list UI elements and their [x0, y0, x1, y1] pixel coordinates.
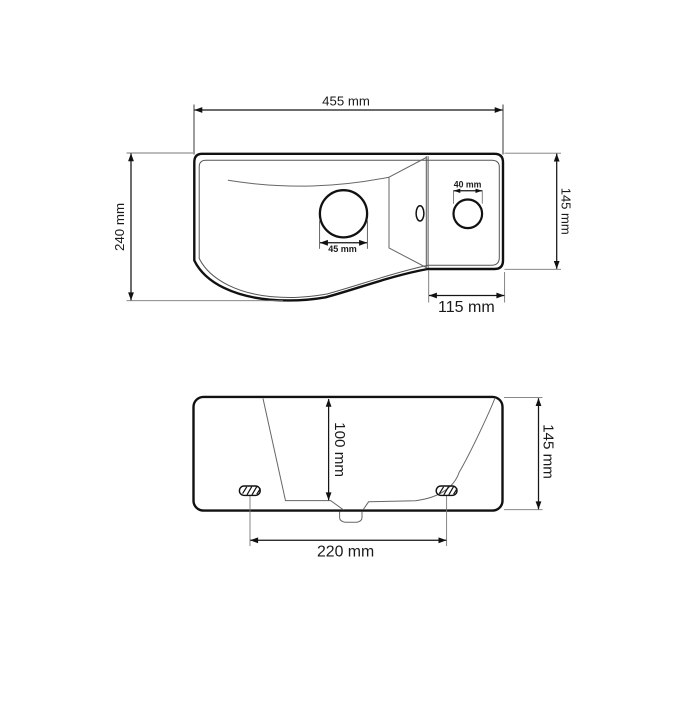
- svg-text:220 mm: 220 mm: [317, 544, 374, 561]
- svg-text:455 mm: 455 mm: [322, 94, 370, 109]
- svg-text:40 mm: 40 mm: [454, 180, 482, 190]
- svg-text:115 mm: 115 mm: [438, 299, 495, 316]
- svg-text:45 mm: 45 mm: [328, 244, 357, 254]
- svg-text:100 mm: 100 mm: [331, 422, 348, 477]
- svg-text:145 mm: 145 mm: [558, 188, 573, 235]
- svg-text:145 mm: 145 mm: [540, 424, 557, 479]
- svg-text:240 mm: 240 mm: [112, 203, 127, 251]
